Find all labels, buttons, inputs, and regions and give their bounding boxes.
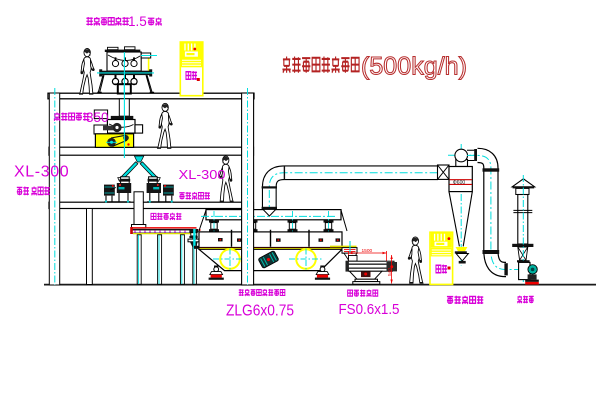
- svg-text:XL-300: XL-300: [14, 164, 69, 181]
- svg-text:540: 540: [387, 268, 393, 276]
- svg-text:(500kg/h): (500kg/h): [361, 53, 467, 81]
- svg-text:FS0.6x1.5: FS0.6x1.5: [339, 301, 400, 318]
- svg-text:1.5: 1.5: [128, 14, 147, 29]
- svg-text:350: 350: [86, 110, 109, 125]
- svg-text:Φ600: Φ600: [453, 180, 466, 186]
- svg-text:XL-300: XL-300: [179, 167, 226, 182]
- svg-text:1500: 1500: [362, 248, 373, 254]
- svg-text:ZLG6x0.75: ZLG6x0.75: [226, 303, 294, 320]
